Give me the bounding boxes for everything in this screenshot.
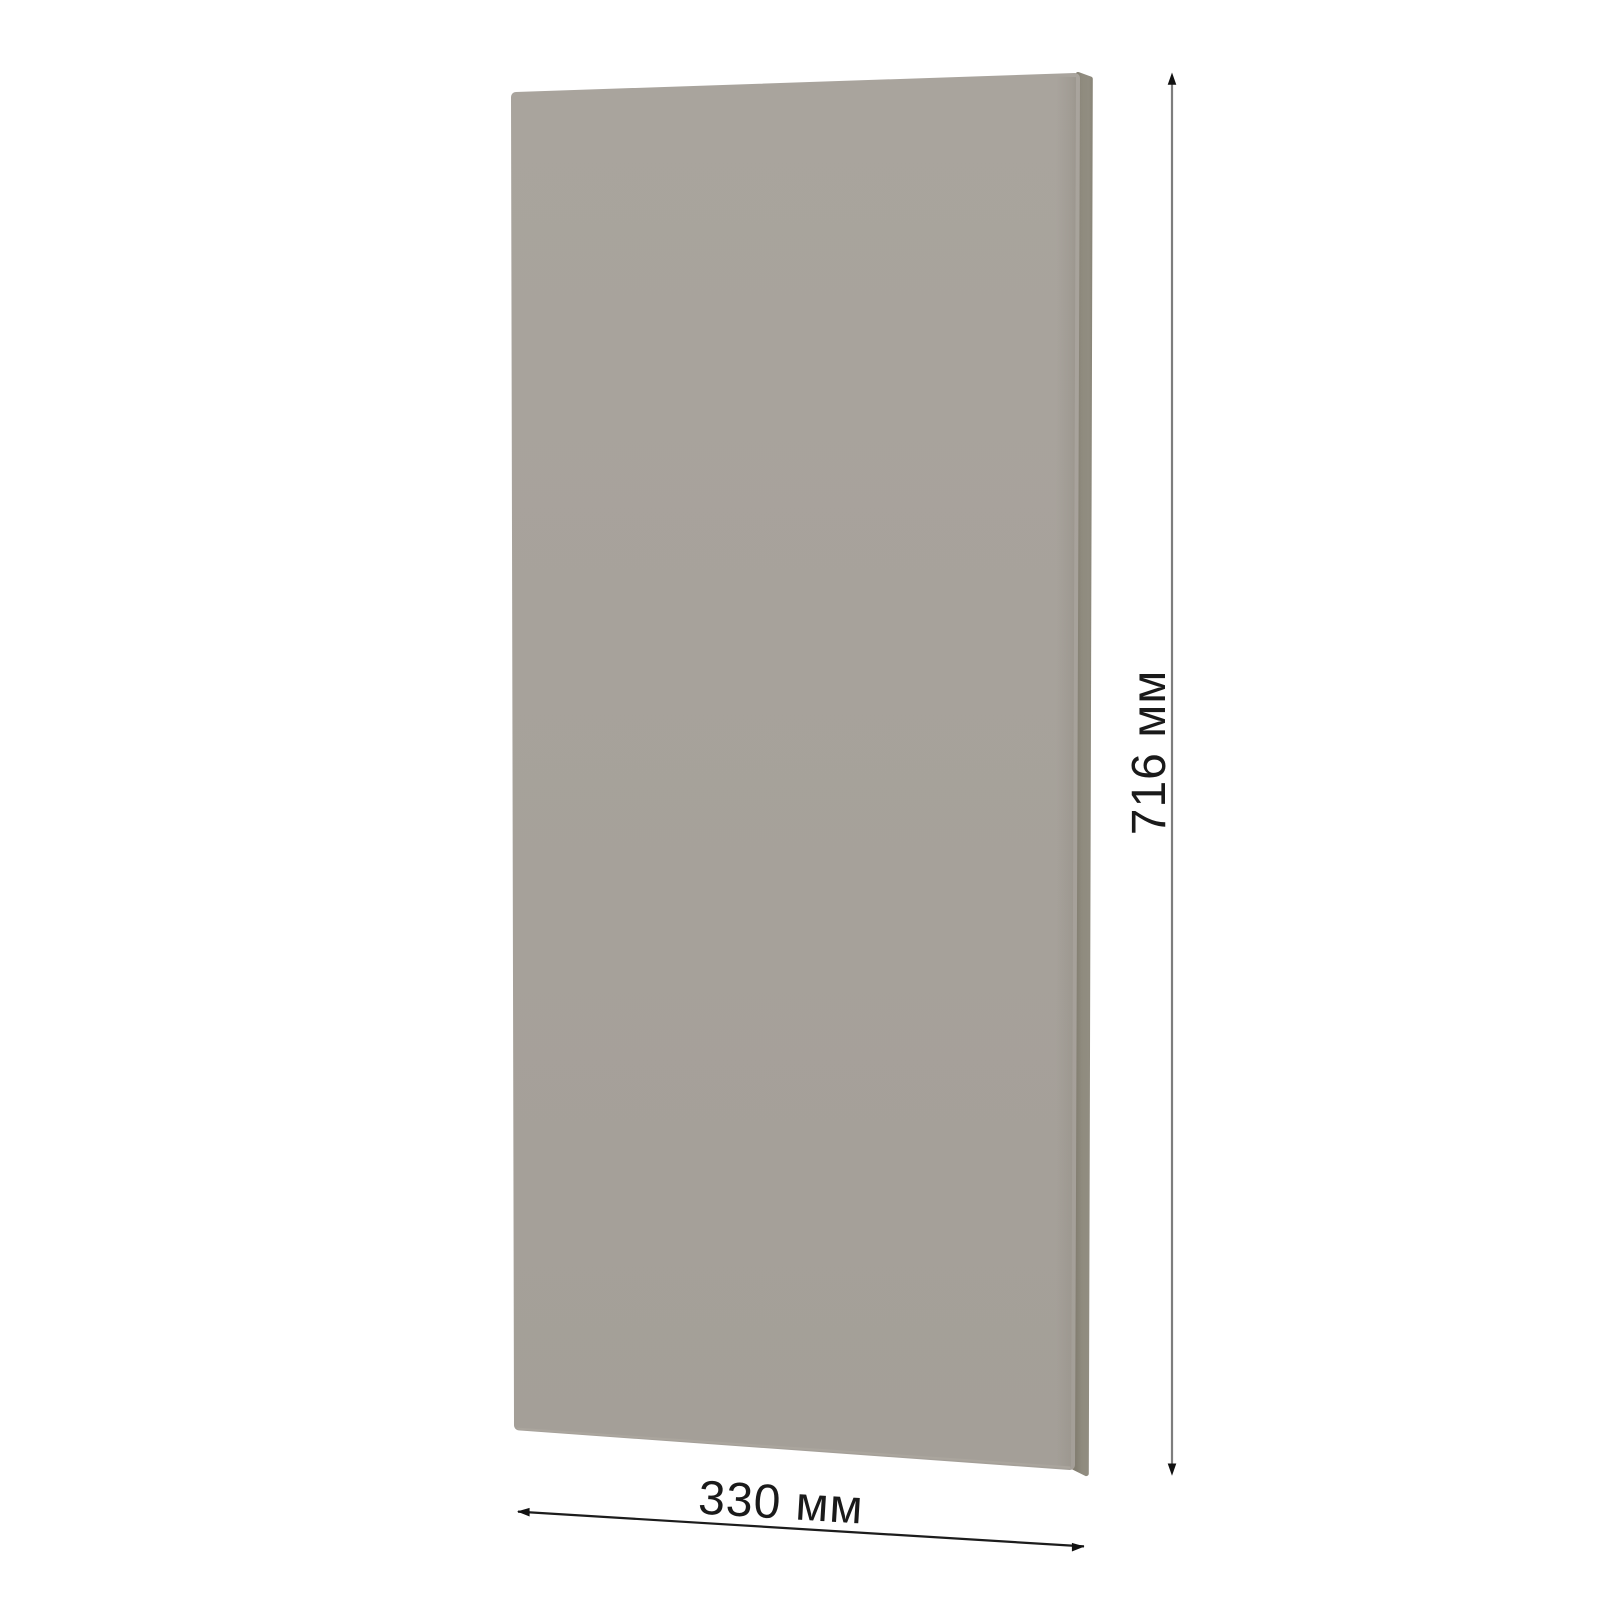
svg-text:330 мм: 330 мм [697, 1472, 865, 1535]
svg-text:716 мм: 716 мм [1123, 670, 1176, 835]
